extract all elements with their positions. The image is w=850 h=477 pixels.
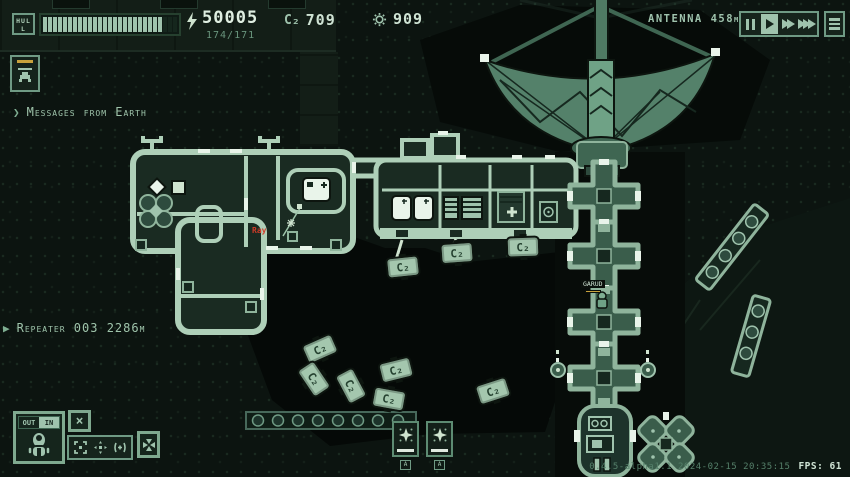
- c2-tank[interactable]: C₂: [295, 359, 332, 399]
- worker-name-tag: GARUD: [581, 280, 605, 288]
- card-hotkey-badge: A: [400, 460, 411, 470]
- out-in-toggle: OUT IN: [18, 416, 60, 429]
- hull-segment: [163, 17, 167, 32]
- chevron-right-icon: ❯: [13, 106, 21, 119]
- hull-segment: [143, 17, 147, 32]
- messages-from-earth-link[interactable]: ❯ Messages from Earth: [13, 105, 147, 119]
- close-icon: ×: [76, 415, 84, 428]
- center-view-button[interactable]: [71, 439, 90, 456]
- antenna-status: ANTENNA 458m: [648, 13, 740, 25]
- menu-icon: [829, 18, 840, 21]
- hull-segment: [53, 17, 57, 32]
- pan-icon: [94, 441, 107, 454]
- hull-segment: [113, 17, 117, 32]
- hull-segment: [133, 17, 137, 32]
- repeater-label: Repeater 003 2286m: [17, 321, 146, 335]
- hull-segment: [173, 17, 177, 32]
- hull-segment: [168, 17, 172, 32]
- hull-badge: HULL: [12, 13, 35, 35]
- hull-segment: [58, 17, 62, 32]
- sparkle-icon: [432, 427, 448, 443]
- fit-view-button[interactable]: [137, 431, 160, 458]
- alert-bar: [17, 60, 33, 63]
- c2-tank[interactable]: C₂: [439, 241, 474, 265]
- speed-controls: [739, 11, 819, 37]
- astronaut-icon: [26, 430, 52, 460]
- toggle-out[interactable]: OUT: [19, 417, 39, 428]
- sun-icon: [372, 12, 387, 27]
- ff-icon: [787, 19, 795, 29]
- deselect-button[interactable]: ×: [68, 410, 91, 432]
- c2-tank[interactable]: C₂: [473, 375, 512, 406]
- hull-segment: [78, 17, 82, 32]
- fff-icon: [808, 19, 816, 29]
- hull-segment: [68, 17, 72, 32]
- hull-segment: [118, 17, 122, 32]
- c2-tank[interactable]: C₂: [333, 366, 368, 406]
- lander-icon: [16, 66, 34, 84]
- game-screen: C₂C₂C₂C₂C₂C₂C₂C₂C₂ Ray GARUD A A HULL 50…: [0, 0, 850, 477]
- play-icon: [766, 19, 774, 29]
- hull-segment: [83, 17, 87, 32]
- energy-secondary: 174/171: [206, 30, 255, 41]
- c2-resource: C₂ 709: [284, 13, 336, 28]
- hull-segment: [48, 17, 52, 32]
- menu-icon: [829, 23, 840, 26]
- rotate-view-button[interactable]: [111, 439, 130, 456]
- collapse-arrows-icon: [142, 438, 156, 452]
- pause-icon: [746, 19, 755, 30]
- menu-icon: [829, 27, 840, 30]
- c2-tank[interactable]: C₂: [300, 332, 340, 366]
- solar-resource: 909: [372, 12, 423, 27]
- hull-segment: [88, 17, 92, 32]
- worker-progress-bar: [585, 290, 601, 293]
- energy-value: 50005: [202, 10, 258, 27]
- hull-segment: [148, 17, 152, 32]
- version-text: 0.4.5-alpha1.1 2024-02-15 20:35:15: [589, 462, 790, 472]
- menu-button[interactable]: [824, 11, 845, 37]
- view-toolbar: [67, 435, 133, 460]
- build-card[interactable]: [426, 421, 453, 457]
- card-hotkey-badge: A: [434, 460, 445, 470]
- hull-segment: [138, 17, 142, 32]
- card-progress: [397, 449, 414, 452]
- c2-tank[interactable]: C₂: [370, 385, 407, 413]
- hull-segment: [153, 17, 157, 32]
- energy-icon: [186, 12, 198, 30]
- character-label-red: Ray: [252, 226, 266, 235]
- repeater-link[interactable]: ▶ Repeater 003 2286m: [3, 321, 145, 335]
- hull-segment: [103, 17, 107, 32]
- speed-ff[interactable]: [779, 14, 797, 34]
- status-footer: 0.4.5-alpha1.1 2024-02-15 20:35:15 FPS: …: [589, 461, 842, 472]
- hull-segment: [158, 17, 162, 32]
- triangle-right-icon: ▶: [3, 322, 11, 335]
- fps-counter: FPS: 61: [798, 461, 842, 472]
- speed-pause[interactable]: [742, 14, 760, 34]
- hull-segment: [128, 17, 132, 32]
- hull-segment: [43, 17, 47, 32]
- toggle-in[interactable]: IN: [39, 417, 59, 428]
- speed-play[interactable]: [761, 14, 779, 34]
- c2-tank[interactable]: C₂: [385, 254, 421, 279]
- map-layer: C₂C₂C₂C₂C₂C₂C₂C₂C₂: [0, 0, 850, 477]
- card-progress: [431, 449, 448, 452]
- c2-value: 709: [306, 13, 336, 28]
- notification-button[interactable]: [10, 55, 40, 92]
- hull-segment: [123, 17, 127, 32]
- pan-view-button[interactable]: [91, 439, 110, 456]
- messages-label: Messages from Earth: [27, 105, 147, 119]
- focus-icon: [74, 441, 87, 454]
- solar-value: 909: [393, 12, 423, 27]
- hull-bar: [39, 13, 181, 36]
- sparkle-icon: [398, 427, 414, 443]
- rotate-icon: [113, 441, 127, 454]
- c2-tank[interactable]: C₂: [506, 235, 541, 258]
- c2-icon: C₂: [284, 14, 300, 27]
- hull-segment: [108, 17, 112, 32]
- speed-fff[interactable]: [798, 14, 816, 34]
- hull-segment: [63, 17, 67, 32]
- airlock-panel: OUT IN: [13, 411, 65, 464]
- build-card[interactable]: [392, 421, 419, 457]
- hull-segment: [93, 17, 97, 32]
- hull-segment: [73, 17, 77, 32]
- hull-segment: [98, 17, 102, 32]
- c2-tank[interactable]: C₂: [377, 355, 415, 385]
